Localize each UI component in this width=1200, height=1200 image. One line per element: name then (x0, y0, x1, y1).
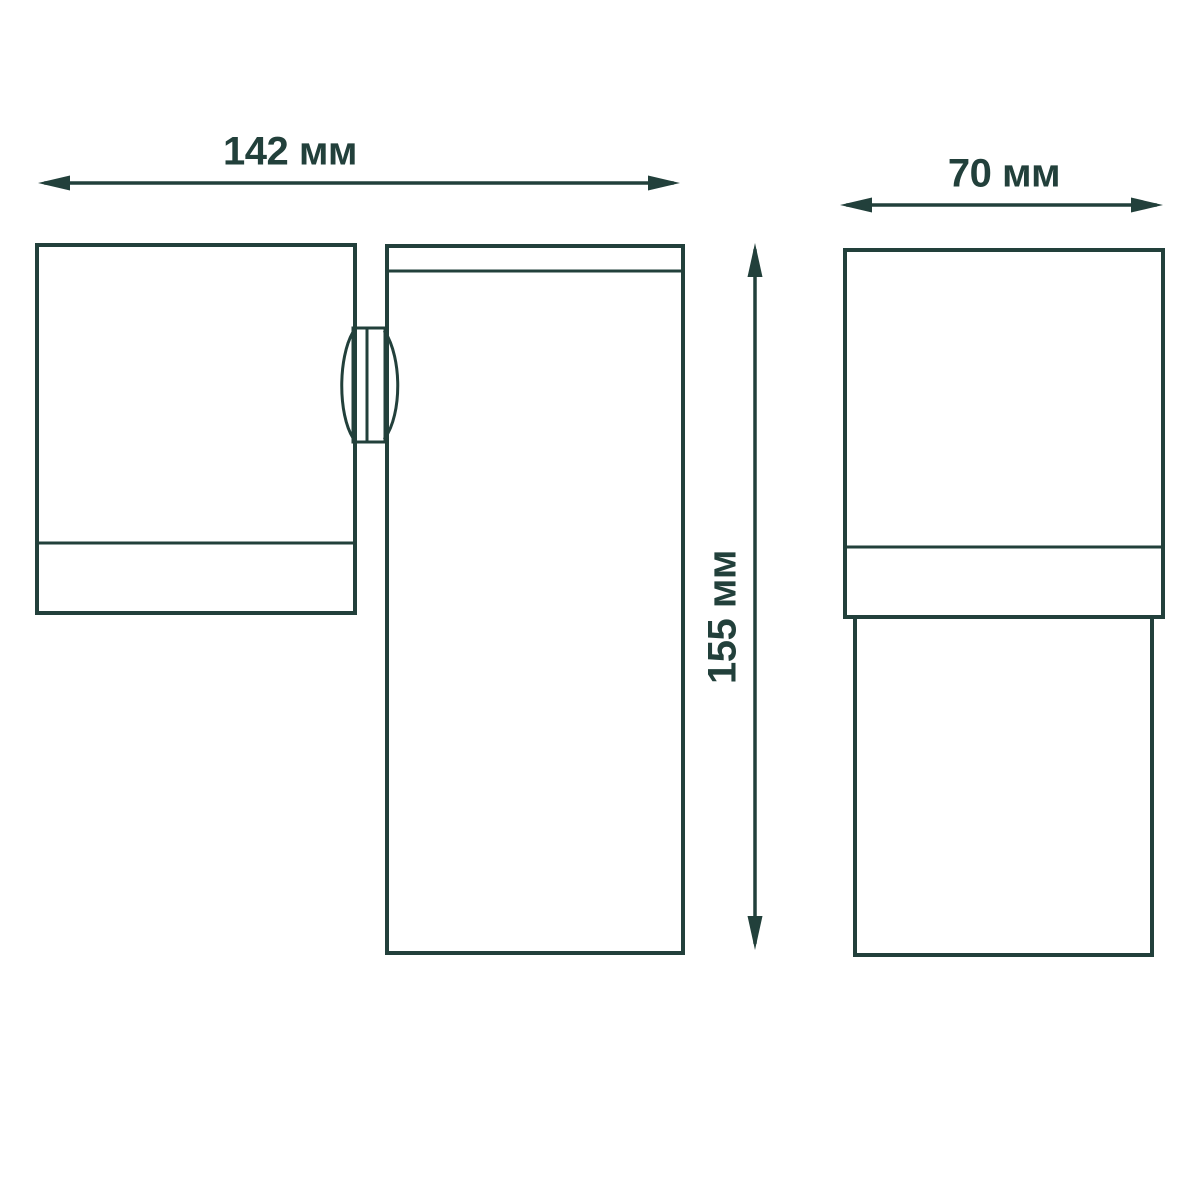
width-dimension-arrow (38, 176, 680, 191)
hinge-left-bulge (342, 332, 353, 438)
depth-dimension-arrow (840, 198, 1163, 213)
arrowhead-up-icon (748, 243, 763, 277)
arrowhead-down-icon (748, 916, 763, 950)
lamp-head-outline (37, 245, 355, 613)
front-upper-outline (845, 250, 1163, 617)
arrowhead-left-icon (38, 176, 70, 191)
width-dimension-label: 142 мм (223, 130, 357, 175)
arrowhead-left-icon (840, 198, 872, 213)
swivel-hinge (342, 328, 398, 442)
arrowhead-right-icon (648, 176, 680, 191)
side-view (37, 245, 683, 953)
arrowhead-right-icon (1131, 198, 1163, 213)
height-dimension-label: 155 мм (701, 550, 746, 684)
hinge-block (353, 328, 385, 442)
line-art (37, 176, 1163, 956)
front-view (845, 250, 1163, 955)
dimensional-drawing-page: 142 мм 70 мм 155 мм (0, 0, 1200, 1200)
front-lower-outline (855, 617, 1152, 955)
height-dimension-arrow (748, 243, 763, 950)
mount-body-outline (387, 246, 683, 953)
depth-dimension-label: 70 мм (948, 152, 1060, 197)
